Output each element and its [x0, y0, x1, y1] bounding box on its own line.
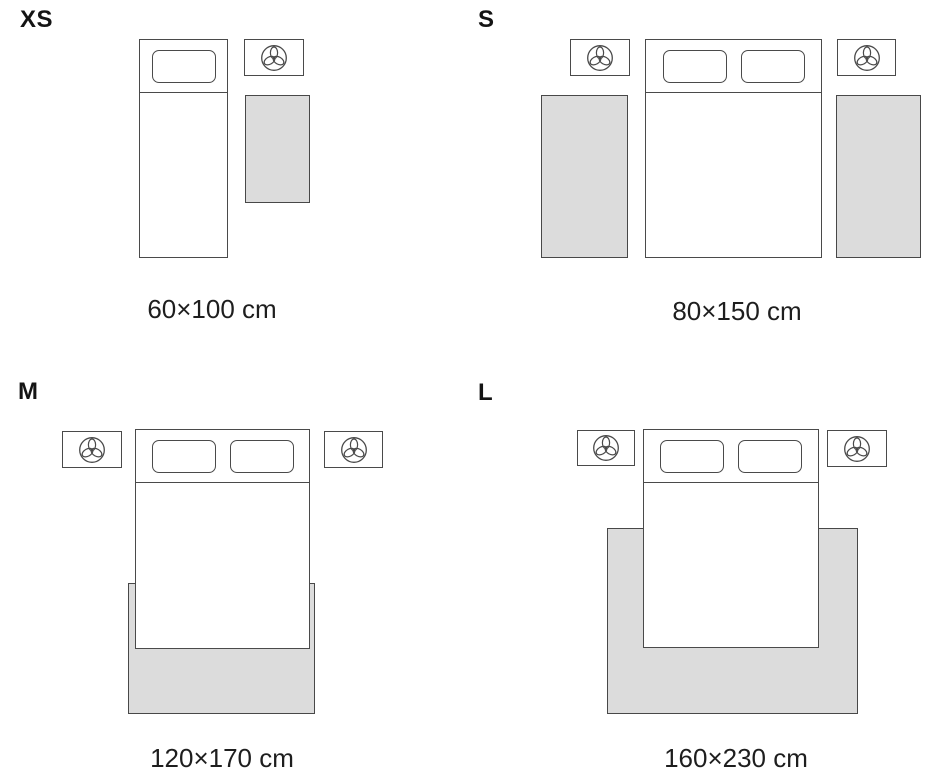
pillow: [663, 50, 727, 83]
size-option-s: S: [470, 0, 940, 350]
plant-top-view-icon: [852, 43, 882, 73]
size-label-xs: XS: [20, 6, 53, 34]
rug-s-right: [836, 95, 921, 258]
bed-single: [139, 39, 228, 258]
pillow: [152, 50, 216, 83]
pillow: [741, 50, 805, 83]
bed-headboard: [646, 40, 821, 93]
size-caption-xs: 60×100 cm: [97, 294, 327, 325]
size-caption-s: 80×150 cm: [622, 296, 852, 327]
nightstand: [570, 39, 630, 76]
pillow: [660, 440, 724, 473]
pillow: [738, 440, 802, 473]
plant-top-view-icon: [842, 434, 872, 464]
nightstand: [837, 39, 896, 76]
bed-headboard: [136, 430, 309, 483]
size-option-l: L: [470, 360, 940, 780]
rug-xs: [245, 95, 310, 203]
size-caption-l: 160×230 cm: [621, 743, 851, 774]
size-option-m: M: [0, 360, 470, 780]
plant-top-view-icon: [591, 433, 621, 463]
bed-headboard: [644, 430, 818, 483]
size-label-m: M: [18, 378, 39, 406]
size-label-s: S: [478, 6, 495, 34]
pillow: [230, 440, 294, 473]
nightstand: [827, 430, 887, 467]
size-option-xs: XS 60×100 cm: [0, 0, 470, 350]
rug-size-guide-diagram: XS 60×100 cm S: [0, 0, 940, 780]
pillow: [152, 440, 216, 473]
plant-top-view-icon: [77, 435, 107, 465]
bed-double: [643, 429, 819, 648]
size-caption-m: 120×170 cm: [107, 743, 337, 774]
rug-s-left: [541, 95, 628, 258]
bed-headboard: [140, 40, 227, 93]
plant-top-view-icon: [339, 435, 369, 465]
bed-double: [135, 429, 310, 649]
nightstand: [244, 39, 304, 76]
bed-double: [645, 39, 822, 258]
plant-top-view-icon: [585, 43, 615, 73]
nightstand: [62, 431, 122, 468]
size-label-l: L: [478, 379, 493, 407]
nightstand: [324, 431, 383, 468]
nightstand: [577, 430, 635, 466]
plant-top-view-icon: [259, 43, 289, 73]
